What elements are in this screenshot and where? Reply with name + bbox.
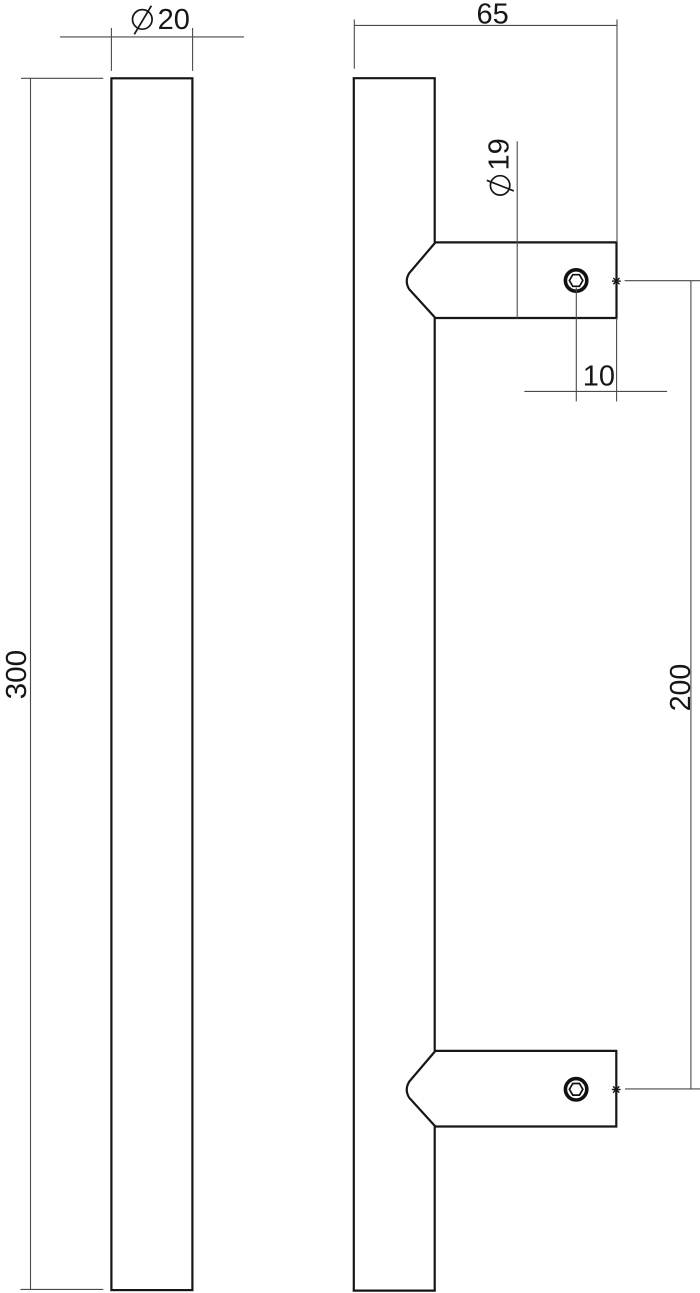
svg-text:19: 19 [484,138,516,170]
svg-text:65: 65 [477,0,509,31]
svg-text:300: 300 [1,650,33,700]
svg-text:10: 10 [583,360,615,392]
svg-text:20: 20 [158,4,190,36]
svg-text:200: 200 [665,664,697,712]
